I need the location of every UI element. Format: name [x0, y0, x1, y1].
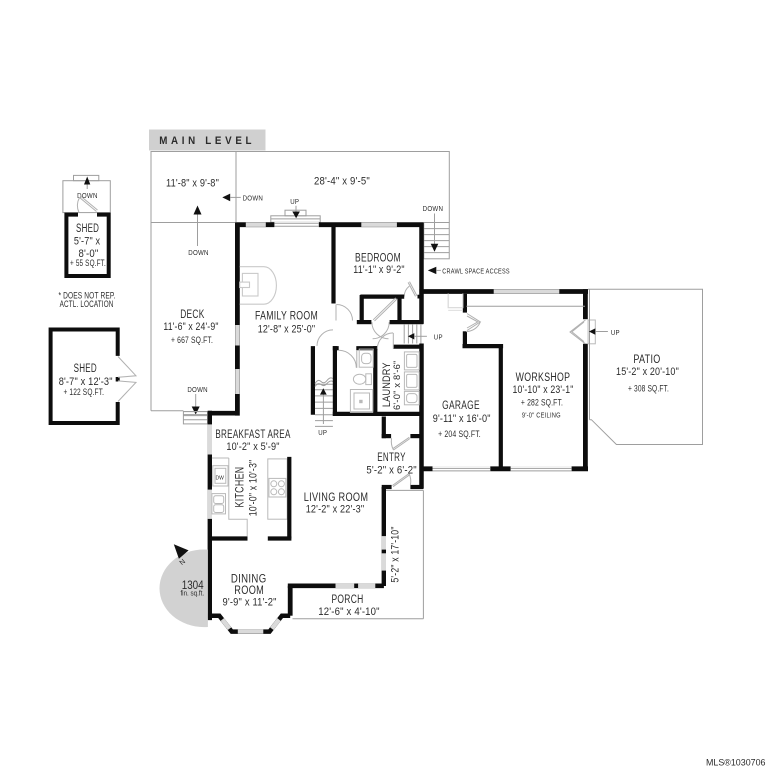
svg-text:+ 282 SQ.FT.: + 282 SQ.FT.	[521, 397, 563, 407]
svg-text:DINING: DINING	[231, 574, 267, 586]
svg-text:SHED: SHED	[76, 223, 99, 235]
svg-text:DECK: DECK	[180, 309, 204, 321]
svg-text:10'-10" x 23'-1": 10'-10" x 23'-1"	[513, 384, 574, 396]
svg-text:UP: UP	[611, 328, 620, 337]
svg-text:ACTL. LOCATION: ACTL. LOCATION	[60, 299, 114, 309]
svg-text:SHED: SHED	[74, 363, 97, 375]
svg-text:11'-8" x 9'-8": 11'-8" x 9'-8"	[166, 177, 219, 189]
svg-text:UP: UP	[290, 197, 299, 206]
svg-text:5'-2" x 17'-10": 5'-2" x 17'-10"	[389, 526, 401, 582]
svg-text:fin. sq.ft.: fin. sq.ft.	[180, 589, 204, 598]
svg-text:10'-0" x 10'-3": 10'-0" x 10'-3"	[248, 460, 260, 517]
svg-text:10'-2" x 5'-9": 10'-2" x 5'-9"	[226, 441, 279, 453]
svg-text:12'-6" x 4'-10": 12'-6" x 4'-10"	[318, 606, 380, 618]
svg-text:12'-8" x 25'-0": 12'-8" x 25'-0"	[258, 323, 315, 335]
svg-text:+ 667 SQ.FT.: + 667 SQ.FT.	[171, 335, 213, 345]
svg-text:BEDROOM: BEDROOM	[355, 252, 401, 264]
svg-text:5'-7" x: 5'-7" x	[74, 236, 101, 248]
svg-text:MAIN LEVEL: MAIN LEVEL	[159, 135, 255, 147]
svg-text:UP: UP	[318, 428, 327, 437]
svg-text:KITCHEN: KITCHEN	[235, 467, 247, 508]
svg-text:15'-2" x 20'-10": 15'-2" x 20'-10"	[616, 366, 679, 378]
svg-text:PATIO: PATIO	[633, 354, 660, 366]
svg-text:DOWN: DOWN	[77, 191, 98, 200]
svg-text:LIVING ROOM: LIVING ROOM	[304, 492, 369, 504]
svg-text:9'-9" x 11'-2": 9'-9" x 11'-2"	[223, 597, 277, 609]
svg-text:11'-1" x 9'-2": 11'-1" x 9'-2"	[353, 264, 404, 276]
svg-text:+ 308 SQ.FT.: + 308 SQ.FT.	[628, 383, 669, 393]
svg-text:WORKSHOP: WORKSHOP	[516, 372, 571, 384]
svg-text:DOWN: DOWN	[188, 248, 209, 257]
svg-text:+ 204 SQ.FT.: + 204 SQ.FT.	[438, 429, 481, 439]
svg-text:DOWN: DOWN	[243, 193, 264, 202]
svg-text:PORCH: PORCH	[331, 594, 363, 606]
svg-text:DW: DW	[216, 476, 225, 482]
svg-text:28'-4" x 9'-5": 28'-4" x 9'-5"	[314, 175, 370, 187]
svg-text:8'-7" x 12'-3": 8'-7" x 12'-3"	[59, 376, 113, 388]
svg-text:6'-0" x 8'-6": 6'-0" x 8'-6"	[392, 360, 402, 410]
svg-text:+ 122 SQ.FT.: + 122 SQ.FT.	[63, 387, 104, 397]
svg-text:ROOM: ROOM	[234, 585, 264, 597]
svg-text:DOWN: DOWN	[423, 204, 444, 213]
svg-text:5'-2" x 6'-2": 5'-2" x 6'-2"	[366, 465, 416, 477]
svg-text:+ 55 SQ.FT.: + 55 SQ.FT.	[70, 258, 106, 268]
svg-text:BREAKFAST AREA: BREAKFAST AREA	[215, 429, 290, 441]
svg-text:ENTRY: ENTRY	[377, 452, 405, 464]
svg-text:12'-2" x 22'-3": 12'-2" x 22'-3"	[306, 504, 365, 516]
svg-text:11'-6" x 24'-9": 11'-6" x 24'-9"	[163, 321, 218, 333]
svg-text:DOWN: DOWN	[187, 385, 208, 394]
svg-text:GARAGE: GARAGE	[442, 400, 480, 412]
svg-text:MLS®1030706: MLS®1030706	[706, 757, 766, 767]
svg-text:CRAWL SPACE ACCESS: CRAWL SPACE ACCESS	[442, 267, 510, 276]
svg-text:9'-0" CEILING: 9'-0" CEILING	[522, 411, 561, 420]
svg-text:UP: UP	[434, 332, 443, 341]
svg-text:9'-11" x 16'-0": 9'-11" x 16'-0"	[433, 413, 491, 425]
svg-text:FAMILY ROOM: FAMILY ROOM	[255, 311, 318, 323]
